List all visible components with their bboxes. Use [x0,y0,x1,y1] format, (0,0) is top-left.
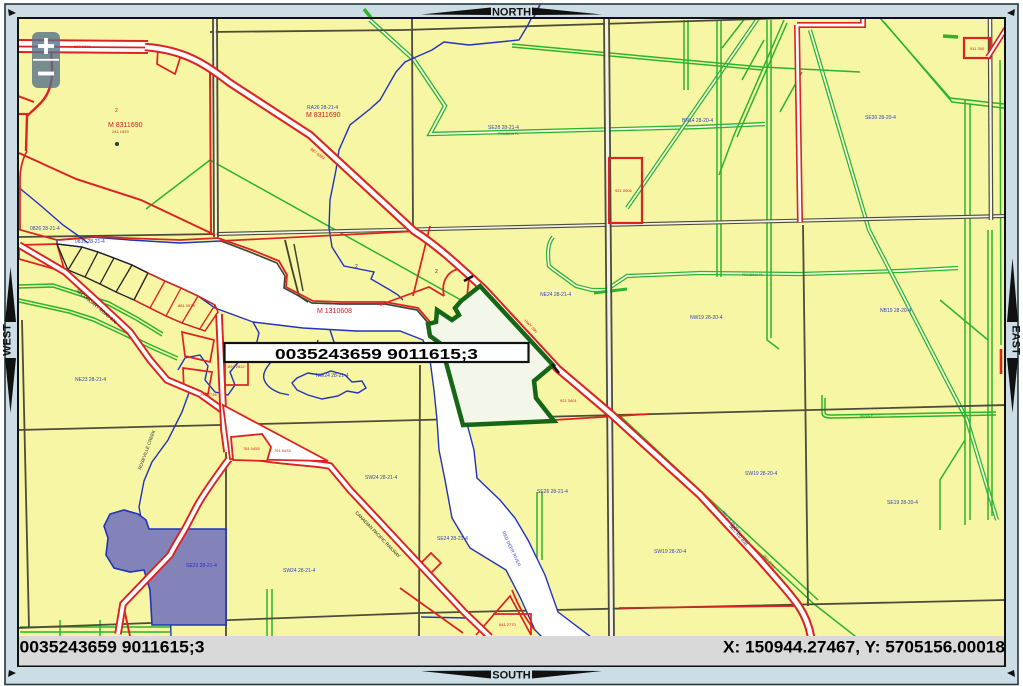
svg-text:781 0455: 781 0455 [243,446,260,451]
svg-text:WEST: WEST [2,324,14,356]
svg-text:2: 2 [435,269,438,275]
svg-text:NE23 28-21-4: NE23 28-21-4 [75,377,106,383]
svg-text:SOUTH: SOUTH [492,670,531,682]
svg-text:PEMBINA PL: PEMBINA PL [742,273,763,277]
svg-text:921 0906: 921 0906 [615,188,632,193]
svg-text:SE24 28-21-4: SE24 28-21-4 [437,536,468,542]
svg-text:PEMBINA PL: PEMBINA PL [498,132,519,136]
svg-text:891 2632: 891 2632 [228,364,245,369]
svg-text:SE30 28-20-4: SE30 28-20-4 [865,115,896,121]
svg-text:SW24 28-21-4: SW24 28-21-4 [365,475,397,481]
svg-text:0826 28-21-4: 0826 28-21-4 [30,226,60,232]
svg-text:SW19 28-20-4: SW19 28-20-4 [654,549,686,555]
svg-text:792 0736: 792 0736 [200,392,217,397]
svg-text:2: 2 [115,108,118,114]
svg-text:0035243659 9011615;3: 0035243659 9011615;3 [275,346,478,363]
svg-text:SE23 28-21-4: SE23 28-21-4 [186,563,217,569]
svg-text:NW24 28-21-4: NW24 28-21-4 [316,373,349,379]
svg-text:NORTH: NORTH [492,7,531,19]
svg-text:EAST: EAST [1010,325,1022,355]
svg-text:911 300: 911 300 [970,46,985,51]
svg-text:M 1310608: M 1310608 [317,308,352,315]
svg-text:SE26 28-21-4: SE26 28-21-4 [537,489,568,495]
svg-text:0035243659 9011615;3: 0035243659 9011615;3 [20,638,205,657]
svg-text:SW19 28-20-4: SW19 28-20-4 [745,471,777,477]
svg-text:NW19 28-20-4: NW19 28-20-4 [690,315,723,321]
svg-text:NB19 28-20-4: NB19 28-20-4 [880,308,911,314]
svg-text:SE19 28-20-4: SE19 28-20-4 [887,500,918,506]
svg-text:887 0289: 887 0289 [74,44,91,49]
svg-text:BN14 28-20-4: BN14 28-20-4 [682,118,713,124]
svg-text:X: 150944.27467, Y: 5705156.00: X: 150944.27467, Y: 5705156.00018 [723,638,1005,657]
svg-text:M 8311690: M 8311690 [108,122,143,129]
svg-text:NOVA P: NOVA P [860,414,874,418]
svg-text:2: 2 [355,264,358,270]
svg-text:SW24 28-21-4: SW24 28-21-4 [283,568,315,574]
svg-text:M 8311690: M 8311690 [306,112,341,119]
svg-text:241 1929: 241 1929 [112,129,129,134]
svg-text:841 2770: 841 2770 [499,622,516,627]
svg-text:NE24 28-21-4: NE24 28-21-4 [540,292,571,298]
svg-text:0835 28-21-4: 0835 28-21-4 [75,239,105,245]
svg-text:921 3401: 921 3401 [560,398,577,403]
svg-text:SE28 28-21-4: SE28 28-21-4 [488,125,519,131]
svg-text:761 0433: 761 0433 [274,448,291,453]
svg-text:881 0078: 881 0078 [178,303,195,308]
svg-text:RA26 28-21-4: RA26 28-21-4 [307,105,338,111]
